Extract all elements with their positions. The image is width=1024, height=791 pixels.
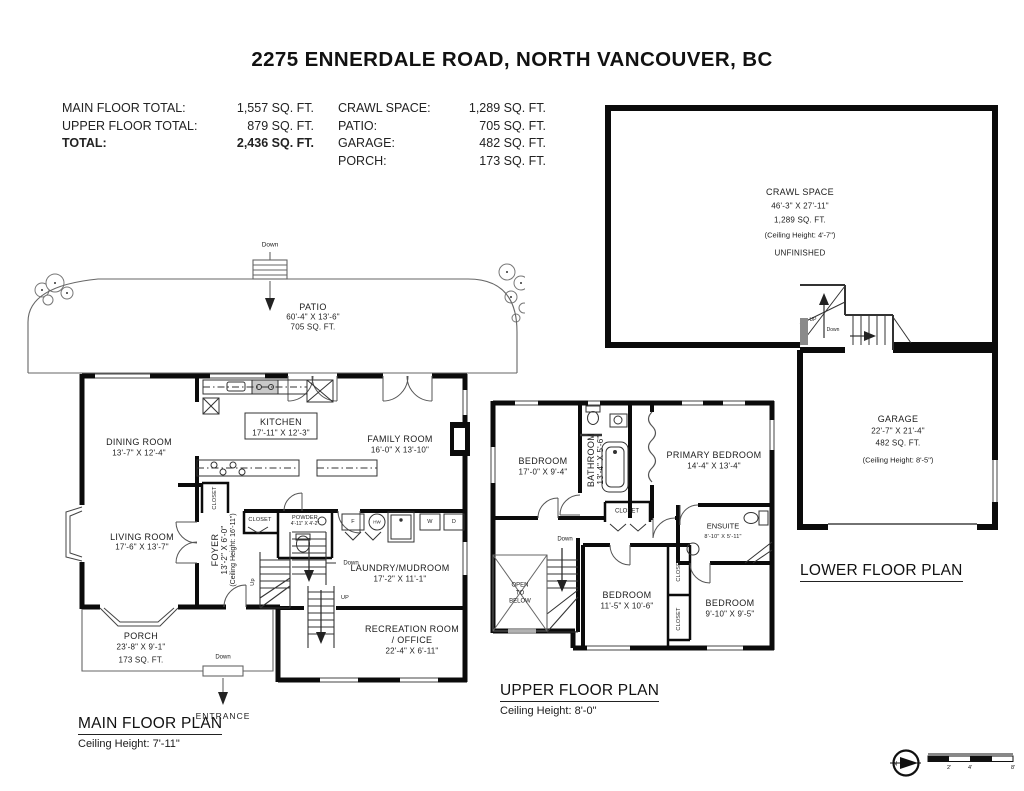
crawl-space-dim: 46'-3" X 27'-11": [771, 201, 829, 210]
main-floor-title-block: MAIN FLOOR PLAN Ceiling Height: 7'-11": [78, 715, 222, 750]
open-below-l2: TO: [516, 591, 524, 598]
summary-value: 1,557 SQ. FT.: [230, 100, 314, 118]
bedroom1-name: BEDROOM: [519, 456, 568, 466]
walls-outer: [608, 108, 995, 527]
summary-row: PORCH: 173 SQ. FT.: [338, 153, 546, 171]
foyer-label: FOYER 13'-2" X 6'-0" (Ceiling Height: 16…: [210, 513, 238, 586]
patio-name: PATIO: [299, 302, 326, 312]
summary-label: PORCH:: [338, 153, 456, 171]
crawl-space-area: 1,289 SQ. FT.: [774, 215, 826, 224]
closet-label: CLOSET: [212, 486, 218, 509]
stairs-recreation: [308, 586, 334, 648]
scale-tick-8: 8': [1011, 765, 1015, 771]
summary-left-column: MAIN FLOOR TOTAL: 1,557 SQ. FT. UPPER FL…: [62, 100, 314, 153]
washer-label: W: [427, 519, 432, 525]
dining-name: DINING ROOM: [106, 437, 172, 447]
north-compass-icon: N: [890, 751, 921, 776]
upper-floor-ceiling-height: Ceiling Height: 8'-0": [500, 705, 659, 717]
summary-label: PATIO:: [338, 118, 456, 136]
down-label: Down: [557, 537, 572, 544]
garage-name: GARAGE: [878, 414, 919, 424]
kitchen-name: KITCHEN: [260, 417, 302, 427]
closet-label: CLOSET: [676, 607, 682, 630]
fireplace: [450, 422, 470, 456]
bedroom1-dim: 17'-0" X 9'-4": [519, 467, 568, 476]
lower-floor-plan-title: LOWER FLOOR PLAN: [800, 562, 963, 582]
powder-dim: 4'-11" X 4'-2": [291, 522, 319, 528]
summary-label: MAIN FLOOR TOTAL:: [62, 100, 230, 118]
family-dim: 16'-0" X 13'-10": [371, 445, 429, 454]
living-dim: 17'-6" X 13'-7": [115, 542, 169, 551]
garage-ceiling: (Ceiling Height: 8'-5"): [863, 457, 934, 466]
open-below-l3: BELOW: [509, 599, 531, 606]
floorplan-sheet: { "page_title": "2275 ENNERDALE ROAD, NO…: [0, 0, 1024, 791]
bathroom-name: BATHROOM: [586, 433, 596, 487]
down-label-patio: Down: [262, 241, 279, 248]
garage-window: [993, 460, 997, 502]
summary-row: CRAWL SPACE: 1,289 SQ. FT.: [338, 100, 546, 118]
foyer-ceiling: (Ceiling Height: 16'-11"): [230, 513, 238, 586]
crawl-space-ceiling: (Ceiling Height: 4'-7"): [765, 232, 836, 241]
summary-row: PATIO: 705 SQ. FT.: [338, 118, 546, 136]
bedroom2-dim: 11'-5" X 10'-6": [601, 601, 654, 610]
furnace-label: F: [351, 519, 355, 525]
down-label-stairs: Down: [343, 561, 358, 568]
down-label-entrance: Down: [215, 655, 230, 662]
page-title: 2275 ENNERDALE ROAD, NORTH VANCOUVER, BC: [0, 48, 1024, 72]
summary-label: TOTAL:: [62, 135, 230, 153]
porch-outline: [82, 609, 273, 705]
main-floor-ceiling-height: Ceiling Height: 7'-11": [78, 738, 222, 750]
summary-label: GARAGE:: [338, 135, 456, 153]
summary-row: UPPER FLOOR TOTAL: 879 SQ. FT.: [62, 118, 314, 136]
upper-floor-title-block: UPPER FLOOR PLAN Ceiling Height: 8'-0": [500, 682, 659, 717]
bedroom3-dim: 9'-10" X 9'-5": [706, 609, 755, 618]
dining-dim: 13'-7" X 12'-4": [112, 448, 166, 457]
scale-tick-2: 2': [947, 765, 951, 771]
closet-label: CLOSET: [248, 517, 271, 523]
kitchen-dim: 17'-11" X 12'-3": [252, 428, 310, 437]
summary-value: 1,289 SQ. FT.: [456, 100, 546, 118]
crawl-space-name: CRAWL SPACE: [766, 187, 834, 197]
north-letter: N: [893, 762, 897, 768]
summary-row: MAIN FLOOR TOTAL: 1,557 SQ. FT.: [62, 100, 314, 118]
summary-row-total: TOTAL: 2,436 SQ. FT.: [62, 135, 314, 153]
porch-name: PORCH: [124, 631, 158, 641]
porch-dim: 23'-8" X 9'-1": [117, 642, 166, 651]
summary-value: 879 SQ. FT.: [230, 118, 314, 136]
up-label: UP: [810, 318, 817, 324]
summary-value: 2,436 SQ. FT.: [230, 135, 314, 153]
hot-water-label: HW: [373, 519, 381, 524]
lower-floor-drawing: [600, 100, 1020, 600]
garage-area: 482 SQ. FT.: [876, 438, 921, 447]
recreation-name: RECREATION ROOM: [365, 624, 459, 634]
summary-row: GARAGE: 482 SQ. FT.: [338, 135, 546, 153]
summary-label: UPPER FLOOR TOTAL:: [62, 118, 230, 136]
lower-floor-plan: CRAWL SPACE 46'-3" X 27'-11" 1,289 SQ. F…: [600, 100, 1020, 600]
garage-dim: 22'-7" X 21'-4": [871, 426, 925, 435]
main-floor-plan: Down PATIO 60'-4" X 13'-6" 705 SQ. FT. D…: [20, 230, 525, 745]
stairs-lower: [800, 285, 911, 350]
summary-value: 173 SQ. FT.: [456, 153, 546, 171]
porch-area: 173 SQ. FT.: [119, 655, 164, 664]
compass-and-scale: N 2' 4' 8': [880, 745, 1020, 785]
living-name: LIVING ROOM: [110, 532, 174, 542]
summary-right-column: CRAWL SPACE: 1,289 SQ. FT. PATIO: 705 SQ…: [338, 100, 546, 170]
up-label-stairs: Up: [250, 578, 256, 585]
stairs-upper: [547, 548, 578, 632]
recreation-name2: / OFFICE: [392, 635, 433, 645]
summary-label: CRAWL SPACE:: [338, 100, 456, 118]
patio-outline: [28, 252, 517, 373]
laundry-dim: 17'-2" X 11'-1": [374, 574, 427, 583]
main-floor-drawing: [20, 230, 525, 745]
dryer-label: D: [452, 519, 456, 525]
patio-dim: 60'-4" X 13'-6": [286, 312, 340, 321]
family-name: FAMILY ROOM: [367, 434, 433, 444]
patio-area: 705 SQ. FT.: [291, 322, 336, 331]
up-label-recreation: UP: [341, 595, 349, 601]
recreation-dim: 22'-4" X 6'-11": [386, 646, 439, 655]
open-below-l1: OPEN: [511, 583, 528, 590]
crawl-space-status: UNFINISHED: [775, 248, 826, 257]
laundry-name: LAUNDRY/MUDROOM: [350, 563, 449, 573]
lower-floor-title-block: LOWER FLOOR PLAN: [800, 562, 963, 582]
stairs-foyer: [260, 532, 336, 608]
scale-tick-4: 4': [968, 765, 972, 771]
scale-bar: 2' 4' 8': [928, 754, 1015, 771]
summary-value: 482 SQ. FT.: [456, 135, 546, 153]
foyer-name: FOYER: [210, 513, 220, 586]
foyer-dim: 13'-2" X 6'-0": [221, 513, 230, 586]
upper-floor-plan-title: UPPER FLOOR PLAN: [500, 682, 659, 702]
main-floor-plan-title: MAIN FLOOR PLAN: [78, 715, 222, 735]
summary-value: 705 SQ. FT.: [456, 118, 546, 136]
down-label: Down: [827, 328, 840, 334]
